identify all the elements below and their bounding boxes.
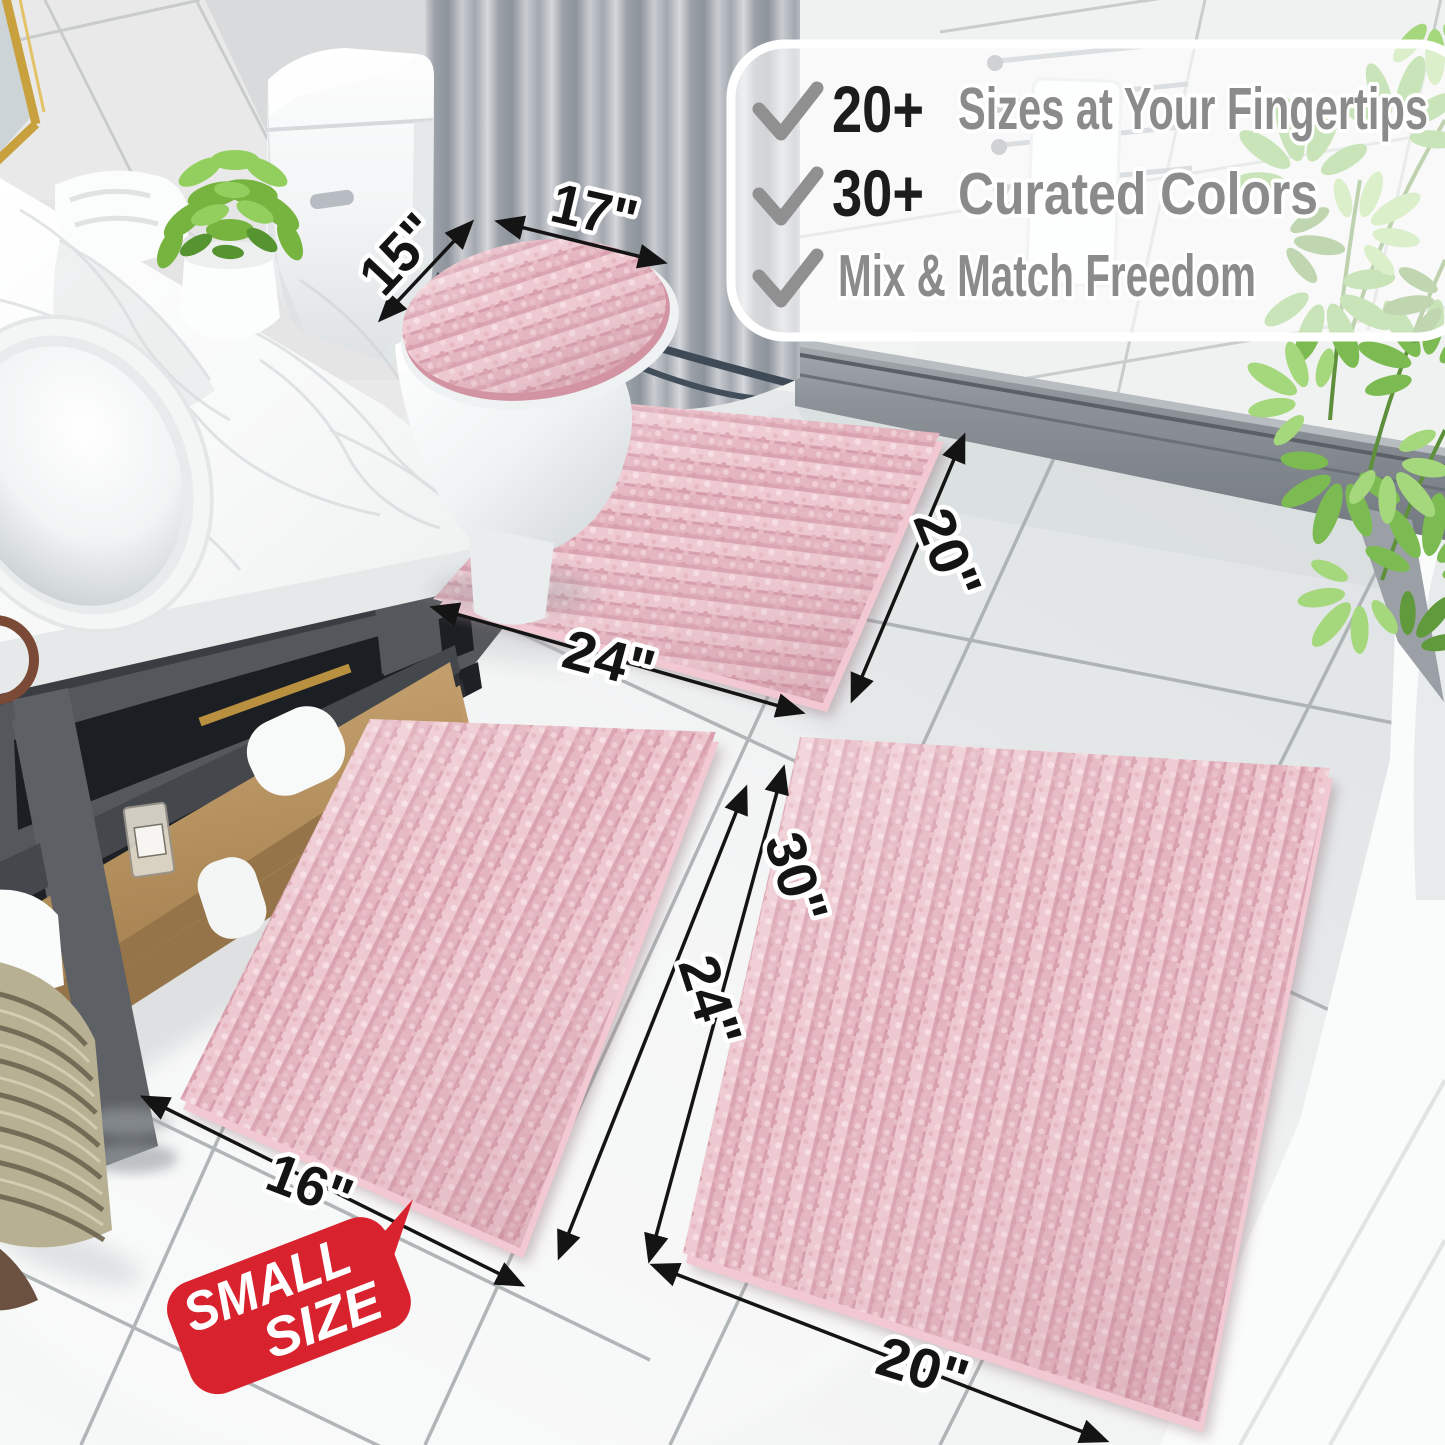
svg-text:30+: 30+ bbox=[832, 156, 924, 230]
svg-text:Curated Colors: Curated Colors bbox=[958, 161, 1318, 227]
svg-text:Sizes at Your Fingertips: Sizes at Your Fingertips bbox=[958, 76, 1428, 142]
svg-text:Mix & Match Freedom: Mix & Match Freedom bbox=[838, 243, 1256, 309]
svg-text:20+: 20+ bbox=[832, 72, 924, 146]
